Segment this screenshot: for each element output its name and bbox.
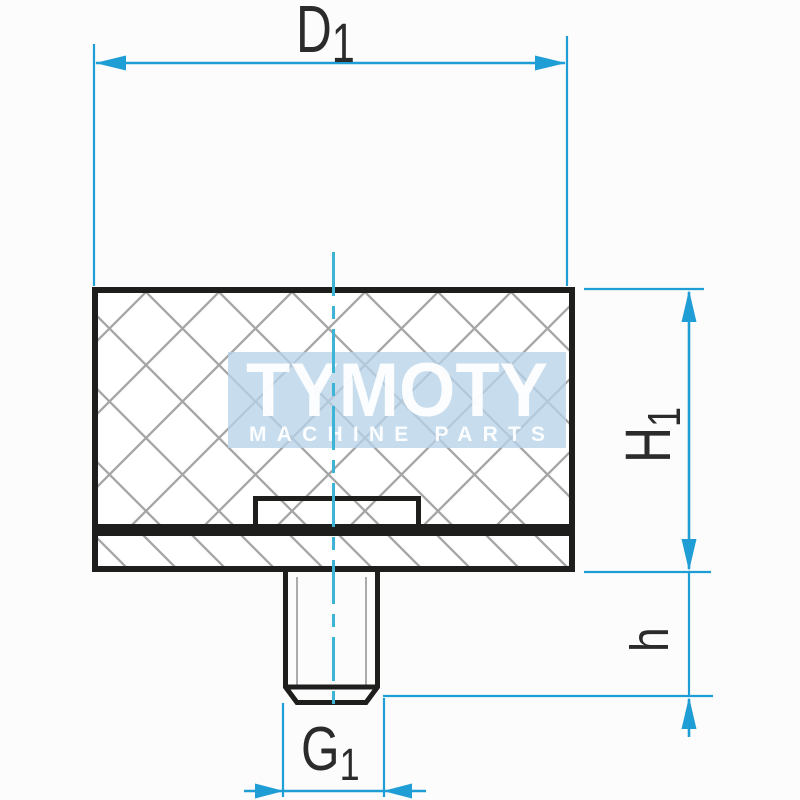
watermark-title: TYMOTY bbox=[246, 348, 548, 433]
dimension-label-h: h bbox=[620, 627, 680, 652]
d1-label-subscript: 1 bbox=[332, 12, 355, 75]
technical-drawing-canvas: TYMOTY MACHINE PARTS bbox=[0, 0, 800, 800]
h-label-base: h bbox=[620, 627, 680, 652]
vibration-mount-drawing: TYMOTY MACHINE PARTS bbox=[0, 0, 800, 800]
h1-label-base: H bbox=[613, 427, 684, 463]
d1-label-base: D bbox=[296, 0, 332, 67]
h1-label-subscript: 1 bbox=[639, 407, 690, 427]
g1-label-subscript: 1 bbox=[340, 739, 360, 790]
dimension-label-d1: D1 bbox=[296, 0, 355, 75]
g1-label-base: G bbox=[301, 714, 340, 784]
watermark: TYMOTY MACHINE PARTS bbox=[228, 348, 566, 448]
